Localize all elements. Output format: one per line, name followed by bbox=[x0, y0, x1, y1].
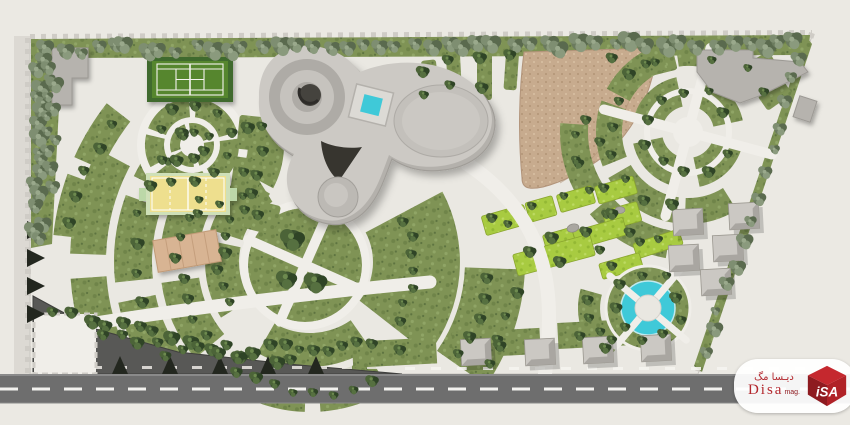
sidewalk-dash bbox=[665, 367, 675, 370]
kiosk-cube bbox=[672, 208, 708, 241]
sidewalk-dash bbox=[613, 367, 623, 370]
isa-cube-logo: iSA bbox=[804, 363, 850, 409]
site-plan bbox=[0, 0, 850, 425]
volleyball-court bbox=[139, 173, 237, 215]
sidewalk-dash bbox=[457, 367, 467, 370]
sidewalk-dash bbox=[561, 367, 571, 370]
street bbox=[0, 374, 850, 403]
brand-name: Disamag. bbox=[748, 383, 800, 400]
sidewalk-dash bbox=[509, 367, 519, 370]
sidewalk-dash bbox=[405, 367, 415, 370]
sidewalk-dash bbox=[691, 367, 701, 370]
watermark-badge: دیـسا مگ Disamag. iSA bbox=[734, 359, 850, 413]
stall-mark bbox=[192, 366, 202, 369]
stall-mark bbox=[342, 366, 352, 369]
svg-text:iSA: iSA bbox=[816, 385, 838, 400]
court-bench bbox=[139, 188, 146, 201]
sidewalk-dash bbox=[717, 367, 727, 370]
fountain-island bbox=[635, 295, 661, 321]
masterplan-rendering: دیـسا مگ Disamag. iSA bbox=[0, 0, 850, 425]
stall-mark bbox=[292, 366, 302, 369]
stall-mark bbox=[142, 366, 152, 369]
court-bench bbox=[230, 188, 237, 201]
sidewalk-dash bbox=[431, 367, 441, 370]
spiral-ramp bbox=[269, 59, 345, 135]
tennis-court bbox=[147, 57, 233, 102]
roof-dome bbox=[318, 177, 358, 217]
stall-mark bbox=[242, 366, 252, 369]
roof-oval-top bbox=[402, 92, 480, 150]
kiosk-cube bbox=[524, 338, 560, 371]
sidewalk-dash bbox=[639, 367, 649, 370]
watermark-text: دیـسا مگ Disamag. bbox=[748, 372, 800, 400]
watermark-pill: دیـسا مگ Disamag. iSA bbox=[734, 359, 850, 413]
kiosk-cube bbox=[668, 244, 704, 277]
